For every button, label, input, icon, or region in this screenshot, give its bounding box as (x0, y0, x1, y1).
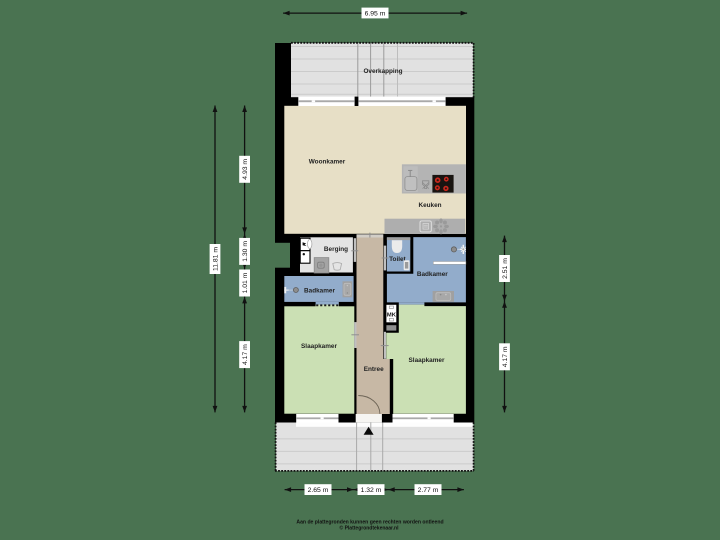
svg-text:Slaapkamer: Slaapkamer (409, 357, 445, 364)
svg-text:11.81 m: 11.81 m (212, 247, 219, 271)
svg-text:Overkapping: Overkapping (363, 68, 402, 75)
svg-text:2.51 m: 2.51 m (502, 258, 509, 279)
svg-text:Woonkamer: Woonkamer (309, 158, 346, 165)
svg-text:2.65 m: 2.65 m (308, 487, 329, 494)
svg-text:Keuken: Keuken (418, 202, 441, 209)
svg-text:4.93 m: 4.93 m (242, 159, 249, 180)
svg-text:1.01 m: 1.01 m (242, 272, 249, 293)
svg-text:Entree: Entree (364, 366, 384, 373)
svg-text:© Plattegrondtekenaar.nl: © Plattegrondtekenaar.nl (340, 525, 400, 532)
svg-text:Badkamer: Badkamer (304, 288, 335, 295)
svg-text:Badkamer: Badkamer (417, 271, 448, 278)
svg-text:Aan de plattegronden kunnen ge: Aan de plattegronden kunnen geen rechten… (296, 520, 443, 526)
svg-text:4.17 m: 4.17 m (502, 346, 509, 367)
svg-text:2.77 m: 2.77 m (418, 487, 439, 494)
svg-text:Slaapkamer: Slaapkamer (301, 343, 337, 350)
svg-text:1.30 m: 1.30 m (242, 241, 249, 262)
svg-text:Berging: Berging (324, 246, 348, 253)
svg-text:6.95 m: 6.95 m (365, 11, 386, 18)
svg-text:1.32 m: 1.32 m (361, 487, 382, 494)
svg-text:4.17 m: 4.17 m (242, 344, 249, 365)
svg-text:MK: MK (387, 313, 397, 319)
